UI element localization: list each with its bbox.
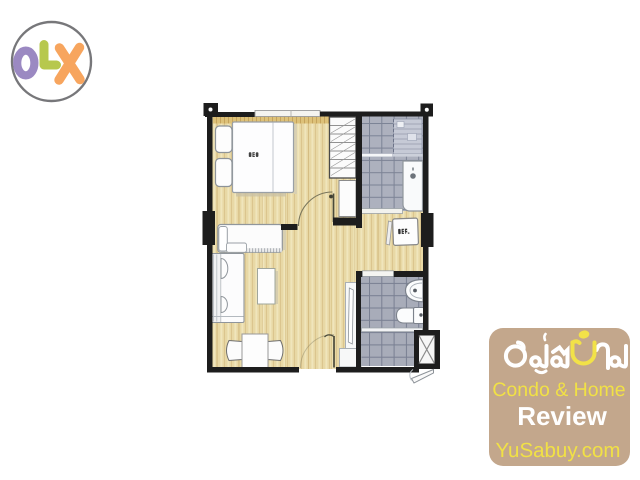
svg-text:Review: Review [517,401,607,431]
svg-text:Condo & Home: Condo & Home [492,379,625,401]
svg-text:YuSabuy.com: YuSabuy.com [496,439,621,462]
